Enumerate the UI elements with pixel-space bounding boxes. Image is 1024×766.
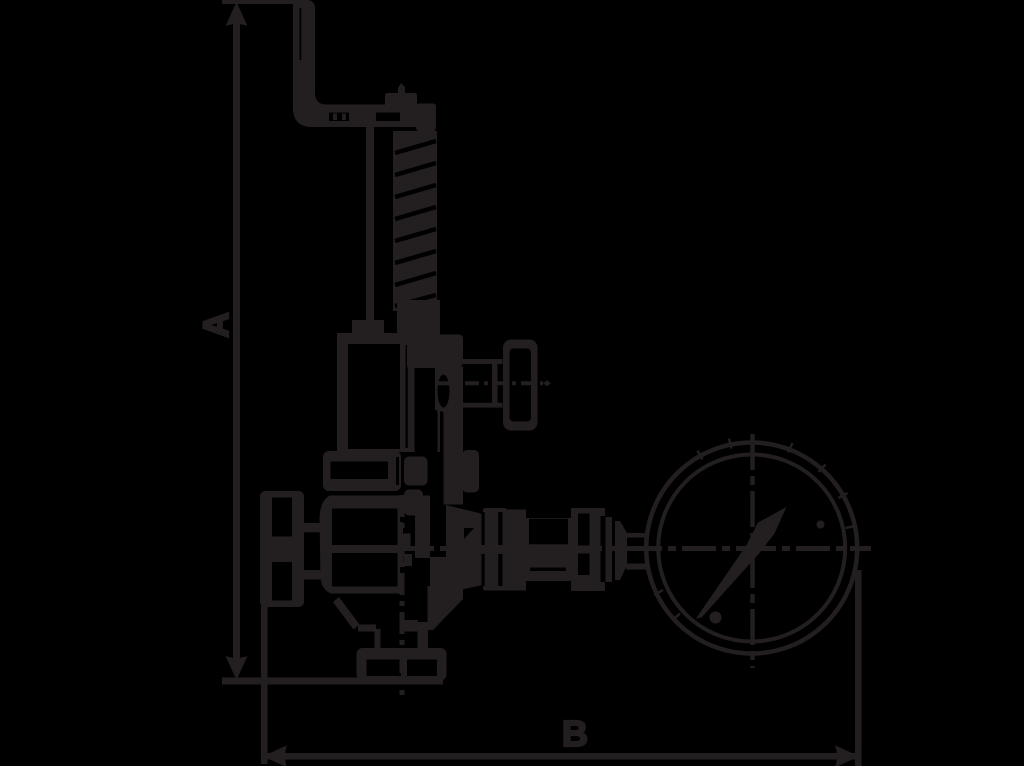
svg-text:B: B xyxy=(562,713,588,754)
svg-text:A: A xyxy=(197,312,236,337)
